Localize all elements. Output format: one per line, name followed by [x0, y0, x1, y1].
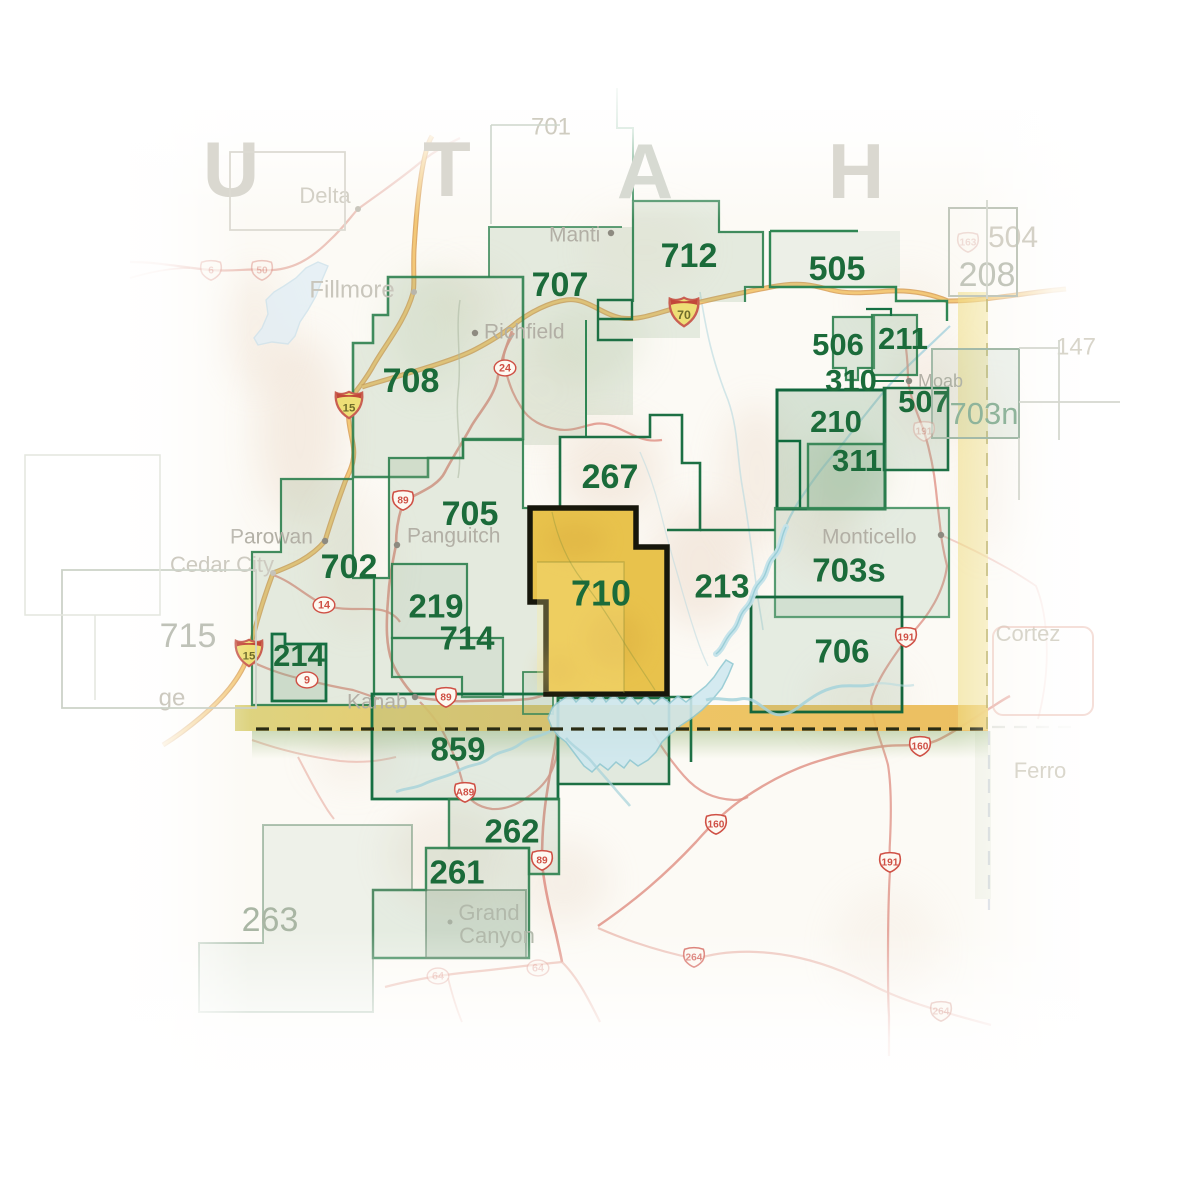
svg-text:89: 89 [440, 692, 452, 703]
svg-text:715: 715 [160, 617, 217, 655]
svg-text:24: 24 [499, 363, 511, 375]
svg-text:T: T [423, 125, 471, 213]
svg-text:311: 311 [832, 443, 882, 478]
svg-text:210: 210 [810, 404, 862, 439]
svg-text:15: 15 [343, 403, 356, 415]
svg-text:263: 263 [242, 901, 299, 939]
svg-text:261: 261 [429, 854, 484, 891]
svg-text:859: 859 [430, 731, 485, 768]
svg-text:191: 191 [898, 632, 915, 643]
svg-text:Kanab: Kanab [347, 691, 408, 714]
svg-text:H: H [828, 127, 884, 215]
svg-text:710: 710 [571, 573, 631, 614]
svg-text:Panguitch: Panguitch [407, 525, 500, 548]
svg-text:89: 89 [536, 855, 548, 866]
svg-text:714: 714 [439, 620, 495, 657]
svg-text:89: 89 [397, 495, 409, 506]
svg-text:701: 701 [531, 113, 571, 140]
svg-text:Grand: Grand [458, 900, 519, 925]
svg-text:Cortez: Cortez [996, 621, 1061, 646]
svg-text:70: 70 [677, 308, 691, 322]
svg-text:707: 707 [532, 266, 589, 304]
svg-text:Monticello: Monticello [822, 526, 917, 549]
svg-text:Cedar City: Cedar City [170, 552, 274, 577]
svg-text:Canyon: Canyon [459, 923, 535, 948]
svg-text:504: 504 [988, 221, 1038, 254]
svg-text:A89: A89 [456, 787, 475, 798]
svg-text:213: 213 [694, 568, 749, 605]
svg-text:147: 147 [1056, 333, 1096, 360]
svg-text:191: 191 [882, 857, 899, 868]
svg-text:U: U [203, 125, 259, 213]
svg-text:708: 708 [383, 362, 440, 400]
svg-text:160: 160 [912, 741, 929, 752]
svg-text:211: 211 [878, 321, 928, 356]
svg-text:706: 706 [814, 633, 869, 670]
svg-text:505: 505 [809, 250, 866, 288]
svg-text:Manti: Manti [549, 224, 600, 247]
svg-text:163: 163 [960, 237, 977, 248]
svg-text:703s: 703s [812, 552, 885, 589]
svg-text:9: 9 [304, 675, 310, 687]
svg-text:14: 14 [318, 600, 330, 612]
svg-text:A: A [617, 127, 673, 215]
svg-text:712: 712 [661, 237, 718, 275]
svg-text:Fillmore: Fillmore [309, 276, 394, 303]
svg-text:506: 506 [812, 327, 864, 362]
svg-text:Delta: Delta [299, 183, 351, 208]
svg-text:Richfield: Richfield [484, 321, 565, 344]
svg-text:160: 160 [708, 819, 725, 830]
svg-text:Ferro: Ferro [1014, 758, 1067, 783]
svg-text:262: 262 [484, 813, 539, 850]
svg-text:310: 310 [825, 363, 877, 398]
svg-text:191: 191 [916, 426, 933, 437]
svg-text:264: 264 [933, 1006, 950, 1017]
svg-text:50: 50 [256, 265, 268, 276]
svg-text:214: 214 [273, 638, 325, 673]
svg-text:267: 267 [582, 458, 639, 496]
svg-text:702: 702 [321, 548, 378, 586]
